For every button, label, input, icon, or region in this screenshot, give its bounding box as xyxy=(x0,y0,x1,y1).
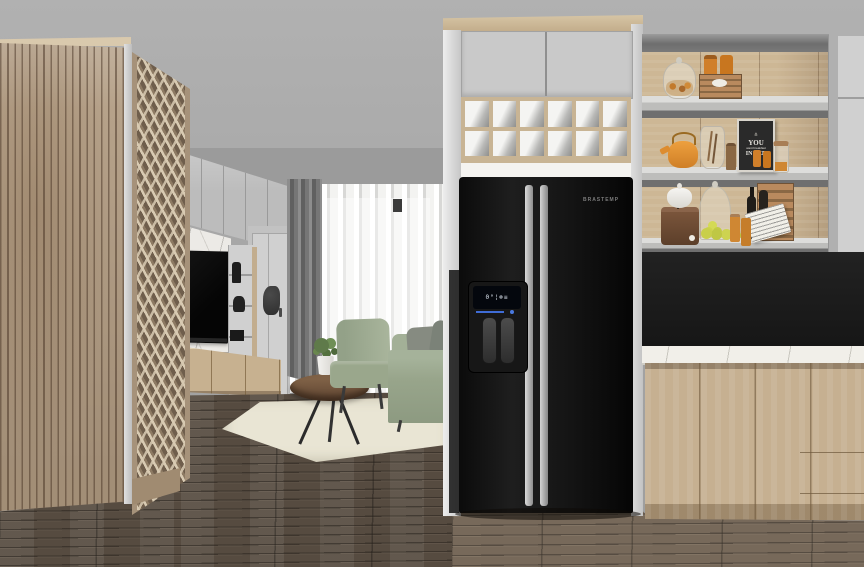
tureen-knob xyxy=(677,183,682,189)
wine-rack-cell xyxy=(520,101,544,127)
wine-rack-cell xyxy=(465,101,489,127)
candy-jar-contents xyxy=(666,80,693,96)
dispenser-display: 0°¦❄≡ xyxy=(473,286,521,309)
hurricane-sticks xyxy=(707,131,712,161)
tall-cabinet-seam xyxy=(838,97,864,99)
marble-countertop xyxy=(642,346,864,365)
plant-foliage xyxy=(314,338,329,353)
upper-cabinet-seam xyxy=(545,32,547,96)
wine-rack-cell xyxy=(576,101,600,127)
dispenser-blue-dot xyxy=(510,310,514,314)
upper-cabinet-doors xyxy=(461,31,633,99)
tower-decor-sculpture xyxy=(233,296,245,312)
wine-rack-cell xyxy=(603,131,627,157)
hurricane-vase xyxy=(700,126,725,169)
lattice-panel xyxy=(132,52,190,515)
tall-gray-cabinet xyxy=(828,36,864,252)
wine-rack-cell xyxy=(493,101,517,127)
shelf-middle xyxy=(642,167,829,187)
wine-rack-cell xyxy=(520,131,544,157)
wine-rack-cell xyxy=(548,131,572,157)
orange-jars xyxy=(730,214,740,242)
slatted-wardrobe-front xyxy=(0,43,124,511)
door-handle xyxy=(279,308,282,317)
fridge-handle-right xyxy=(540,185,548,506)
fridge-cabinet-left-shadow xyxy=(449,270,459,513)
fridge-niche-strip xyxy=(461,163,631,178)
pepper-mill xyxy=(726,143,736,170)
dispenser-pad-left xyxy=(482,317,497,364)
wine-rack-cell xyxy=(548,101,572,127)
fridge-brand-label: BRASTEMP xyxy=(573,197,629,203)
interior-rendering: BRASTEMP 0°¦❄≡ ⋔ YOU want breakfast IN B… xyxy=(0,0,864,567)
wardrobe-side-sliver xyxy=(124,44,132,504)
coffee-grinder xyxy=(661,207,699,245)
orange-mugs xyxy=(753,150,761,167)
tower-decor-vase xyxy=(232,262,241,283)
cloche-knob xyxy=(712,181,718,188)
armchair-seat xyxy=(330,361,393,388)
wine-rack-cell xyxy=(603,101,627,127)
candy-jar-knob xyxy=(676,57,682,64)
window-frame-bar xyxy=(393,199,402,212)
wall-sculpture xyxy=(263,286,280,315)
orange-kettle xyxy=(668,141,698,168)
base-cabinets xyxy=(645,363,864,522)
dispenser-pad-right xyxy=(500,317,515,364)
wine-rack xyxy=(461,97,631,163)
crate-flower xyxy=(712,79,727,87)
dispenser-blue-bar xyxy=(476,311,504,313)
lemons-row xyxy=(701,228,712,239)
canister-contents xyxy=(775,162,787,171)
shelf-top xyxy=(642,96,829,118)
bottle-neck xyxy=(750,187,754,197)
white-tureen xyxy=(667,188,692,208)
wooden-crate-top xyxy=(699,74,742,99)
candy-jar xyxy=(663,62,696,99)
base-cabinet-drawer-seams xyxy=(800,452,864,494)
grinder-label xyxy=(689,235,695,241)
glass-canister xyxy=(773,141,789,173)
wine-rack-cell xyxy=(576,131,600,157)
fridge-floor-shadow xyxy=(455,508,641,520)
wine-rack-cell xyxy=(465,131,489,157)
wine-rack-cell xyxy=(493,131,517,157)
dispenser-display-glyphs: 0°¦❄≡ xyxy=(485,294,508,301)
tower-decor-books xyxy=(230,330,244,341)
black-backsplash xyxy=(642,252,864,347)
